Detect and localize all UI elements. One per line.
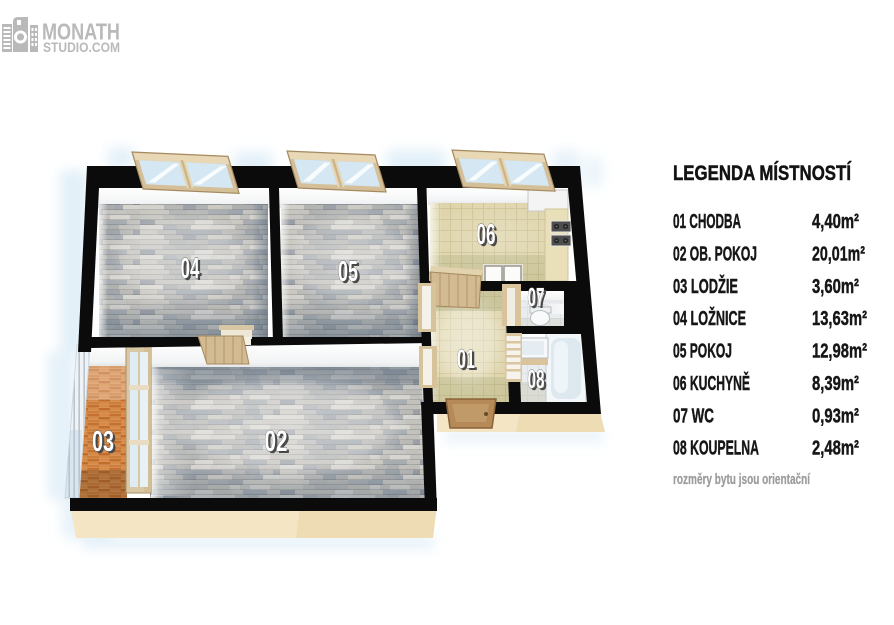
svg-text:12,98m²: 12,98m² (812, 340, 867, 363)
svg-text:4,40m²: 4,40m² (812, 210, 859, 233)
svg-text:02 OB. POKOJ: 02 OB. POKOJ (673, 242, 757, 265)
svg-text:02: 02 (265, 425, 288, 458)
svg-text:03: 03 (92, 426, 114, 458)
svg-text:05: 05 (338, 256, 358, 288)
svg-text:13,63m²: 13,63m² (812, 307, 867, 330)
svg-text:08 KOUPELNA: 08 KOUPELNA (673, 437, 759, 460)
svg-text:2,48m²: 2,48m² (812, 437, 859, 460)
svg-text:05 POKOJ: 05 POKOJ (673, 340, 732, 363)
svg-text:20,01m²: 20,01m² (812, 242, 865, 265)
svg-text:3,60m²: 3,60m² (812, 275, 859, 298)
svg-text:rozměry bytu jsou orientační: rozměry bytu jsou orientační (673, 471, 811, 488)
svg-text:06: 06 (477, 219, 496, 251)
svg-text:08: 08 (528, 364, 545, 394)
svg-text:07 WC: 07 WC (673, 404, 714, 427)
svg-text:8,39m²: 8,39m² (812, 372, 859, 395)
svg-text:06 KUCHYNĚ: 06 KUCHYNĚ (673, 371, 750, 395)
svg-text:STUDIO.COM: STUDIO.COM (43, 40, 120, 55)
svg-text:01 CHODBA: 01 CHODBA (673, 210, 741, 233)
svg-text:0,93m²: 0,93m² (812, 404, 859, 427)
svg-text:04 LOŽNICE: 04 LOŽNICE (673, 306, 746, 330)
svg-text:07: 07 (528, 282, 545, 312)
svg-text:01: 01 (457, 344, 475, 374)
svg-text:04: 04 (181, 253, 200, 285)
svg-text:LEGENDA MÍSTNOSTÍ: LEGENDA MÍSTNOSTÍ (673, 160, 852, 185)
svg-text:03 LODŽIE: 03 LODŽIE (673, 274, 738, 298)
